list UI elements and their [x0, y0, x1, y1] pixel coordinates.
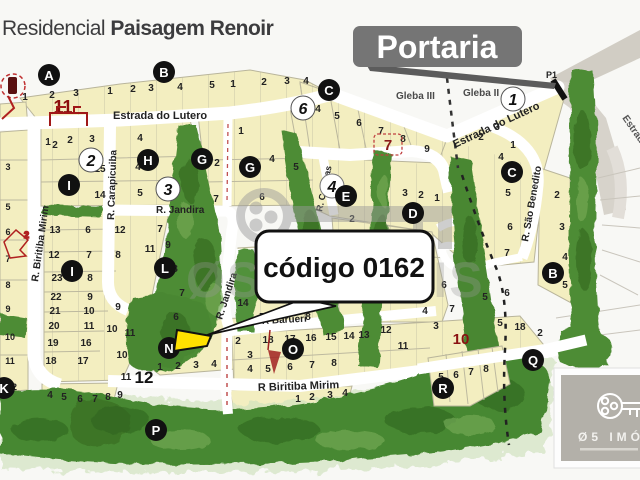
svg-text:9: 9 — [117, 390, 123, 401]
svg-text:4: 4 — [315, 104, 321, 115]
svg-text:9: 9 — [87, 292, 93, 303]
svg-text:18: 18 — [45, 356, 57, 367]
svg-text:11: 11 — [145, 244, 156, 255]
svg-text:K: K — [0, 381, 9, 396]
svg-text:11: 11 — [84, 321, 95, 332]
svg-text:6: 6 — [287, 362, 293, 373]
svg-text:6: 6 — [77, 394, 83, 405]
svg-text:4: 4 — [498, 152, 504, 163]
svg-text:1: 1 — [157, 362, 163, 373]
svg-text:4: 4 — [342, 388, 348, 399]
svg-text:C: C — [324, 83, 334, 98]
svg-text:2: 2 — [554, 190, 560, 201]
svg-text:3: 3 — [402, 188, 408, 199]
svg-text:4: 4 — [247, 364, 253, 375]
svg-text:6: 6 — [504, 288, 510, 299]
svg-text:Residencial Paisagem Renoir: Residencial Paisagem Renoir — [2, 17, 274, 40]
svg-text:B: B — [159, 65, 168, 80]
svg-text:7: 7 — [378, 126, 384, 137]
svg-text:7: 7 — [92, 394, 98, 405]
svg-text:14: 14 — [343, 331, 355, 342]
svg-text:E: E — [342, 189, 351, 204]
svg-text:3: 3 — [433, 321, 439, 332]
svg-text:R. Jandira: R. Jandira — [156, 205, 205, 216]
svg-text:7: 7 — [309, 360, 315, 371]
svg-text:Portaria: Portaria — [377, 29, 498, 65]
svg-text:10: 10 — [83, 306, 95, 317]
svg-text:5: 5 — [334, 111, 340, 122]
svg-text:1: 1 — [238, 126, 244, 137]
svg-text:6: 6 — [356, 118, 362, 129]
svg-text:7: 7 — [157, 224, 163, 235]
svg-text:11: 11 — [125, 328, 136, 339]
svg-text:9: 9 — [424, 144, 430, 155]
svg-text:7: 7 — [86, 250, 92, 261]
svg-text:5: 5 — [497, 318, 503, 329]
svg-text:8: 8 — [105, 392, 111, 403]
svg-text:8: 8 — [331, 358, 337, 369]
svg-text:8: 8 — [115, 250, 121, 261]
svg-text:9: 9 — [115, 302, 121, 313]
svg-text:20: 20 — [48, 321, 60, 332]
svg-text:12: 12 — [380, 325, 392, 336]
svg-text:12: 12 — [48, 250, 60, 261]
svg-text:L: L — [161, 261, 169, 276]
svg-text:6: 6 — [173, 312, 179, 323]
svg-text:1: 1 — [510, 140, 516, 151]
svg-text:7: 7 — [384, 137, 392, 154]
svg-text:3: 3 — [327, 390, 333, 401]
svg-text:4: 4 — [177, 82, 183, 93]
svg-text:Ø5 IMÓ: Ø5 IMÓ — [578, 429, 640, 444]
svg-text:2: 2 — [309, 392, 315, 403]
svg-text:17: 17 — [77, 356, 89, 367]
svg-text:5: 5 — [61, 392, 67, 403]
svg-text:Gleba II: Gleba II — [463, 88, 499, 99]
svg-text:7: 7 — [213, 194, 219, 205]
svg-text:Estrada do Lutero: Estrada do Lutero — [113, 110, 207, 122]
svg-text:I: I — [70, 264, 74, 279]
svg-text:7: 7 — [504, 248, 510, 259]
svg-text:N: N — [164, 341, 173, 356]
svg-text:11: 11 — [121, 372, 132, 383]
svg-text:12: 12 — [114, 225, 126, 236]
svg-text:16: 16 — [305, 333, 317, 344]
svg-text:7: 7 — [179, 288, 185, 299]
svg-text:R: R — [438, 381, 448, 396]
svg-text:19: 19 — [47, 338, 59, 349]
svg-text:4: 4 — [137, 133, 143, 144]
svg-text:15: 15 — [325, 332, 337, 343]
svg-text:12: 12 — [135, 368, 154, 387]
svg-text:3: 3 — [559, 222, 565, 233]
svg-text:4: 4 — [269, 154, 275, 165]
svg-text:4: 4 — [47, 390, 53, 401]
svg-text:2: 2 — [86, 153, 96, 170]
svg-text:14: 14 — [94, 190, 106, 201]
svg-text:8: 8 — [5, 280, 10, 290]
svg-text:3: 3 — [247, 350, 253, 361]
svg-text:H: H — [143, 153, 152, 168]
svg-text:4: 4 — [303, 76, 309, 87]
svg-text:D: D — [408, 206, 417, 221]
svg-text:5: 5 — [137, 188, 143, 199]
svg-text:1: 1 — [295, 394, 301, 405]
svg-text:2: 2 — [67, 135, 73, 146]
svg-text:B: B — [548, 266, 557, 281]
svg-text:I: I — [67, 178, 71, 193]
svg-text:23: 23 — [51, 273, 63, 284]
svg-text:O: O — [288, 342, 298, 357]
svg-text:10: 10 — [116, 350, 128, 361]
svg-text:9: 9 — [165, 240, 171, 251]
svg-text:11: 11 — [398, 341, 409, 352]
svg-text:4: 4 — [562, 252, 568, 263]
svg-text:10: 10 — [453, 331, 470, 348]
svg-text:6: 6 — [507, 222, 513, 233]
svg-text:18: 18 — [514, 322, 526, 333]
svg-text:10: 10 — [106, 324, 118, 335]
svg-text:C: C — [507, 165, 517, 180]
svg-text:código 0162: código 0162 — [263, 252, 425, 283]
svg-text:2: 2 — [214, 158, 220, 169]
svg-text:9: 9 — [5, 304, 10, 314]
svg-text:21: 21 — [49, 306, 61, 317]
svg-text:3: 3 — [89, 134, 95, 145]
svg-text:G: G — [245, 160, 255, 175]
svg-text:2: 2 — [52, 140, 58, 151]
svg-text:22: 22 — [50, 292, 62, 303]
svg-text:4: 4 — [211, 359, 217, 370]
svg-text:6: 6 — [453, 370, 459, 381]
svg-text:4: 4 — [327, 179, 337, 196]
svg-text:1: 1 — [107, 86, 113, 97]
svg-text:5: 5 — [5, 202, 10, 212]
svg-text:16: 16 — [80, 338, 92, 349]
svg-text:6: 6 — [299, 101, 308, 118]
svg-text:3: 3 — [73, 88, 79, 99]
svg-text:G: G — [197, 152, 207, 167]
svg-text:2: 2 — [235, 336, 241, 347]
svg-text:6: 6 — [85, 225, 91, 236]
svg-text:13: 13 — [358, 330, 370, 341]
svg-text:3: 3 — [193, 360, 199, 371]
svg-text:2: 2 — [130, 84, 136, 95]
svg-text:10: 10 — [5, 332, 15, 342]
svg-text:2: 2 — [175, 361, 181, 372]
svg-text:Gleba III: Gleba III — [396, 91, 435, 102]
svg-text:3: 3 — [284, 76, 290, 87]
svg-text:P1: P1 — [546, 70, 557, 80]
svg-text:5: 5 — [293, 162, 299, 173]
svg-text:3: 3 — [164, 182, 173, 199]
svg-text:8: 8 — [87, 273, 93, 284]
svg-text:5: 5 — [265, 364, 271, 375]
svg-text:8: 8 — [483, 364, 489, 375]
svg-text:2: 2 — [261, 77, 267, 88]
svg-text:5: 5 — [209, 80, 215, 91]
svg-text:11: 11 — [5, 356, 15, 366]
svg-text:2: 2 — [537, 328, 543, 339]
svg-text:2: 2 — [418, 190, 424, 201]
svg-text:1: 1 — [230, 79, 236, 90]
svg-text:1: 1 — [45, 137, 51, 148]
svg-text:5: 5 — [562, 280, 568, 291]
svg-text:A: A — [44, 68, 54, 83]
svg-text:1: 1 — [434, 193, 440, 204]
svg-text:3: 3 — [5, 162, 10, 172]
svg-text:Q: Q — [528, 353, 538, 368]
svg-text:5: 5 — [505, 188, 511, 199]
svg-text:8: 8 — [400, 134, 406, 145]
svg-text:7: 7 — [468, 367, 474, 378]
svg-text:3: 3 — [148, 83, 154, 94]
svg-text:13: 13 — [49, 225, 61, 236]
svg-text:1: 1 — [509, 92, 518, 109]
svg-text:P: P — [152, 423, 161, 438]
svg-text:2: 2 — [24, 230, 29, 240]
